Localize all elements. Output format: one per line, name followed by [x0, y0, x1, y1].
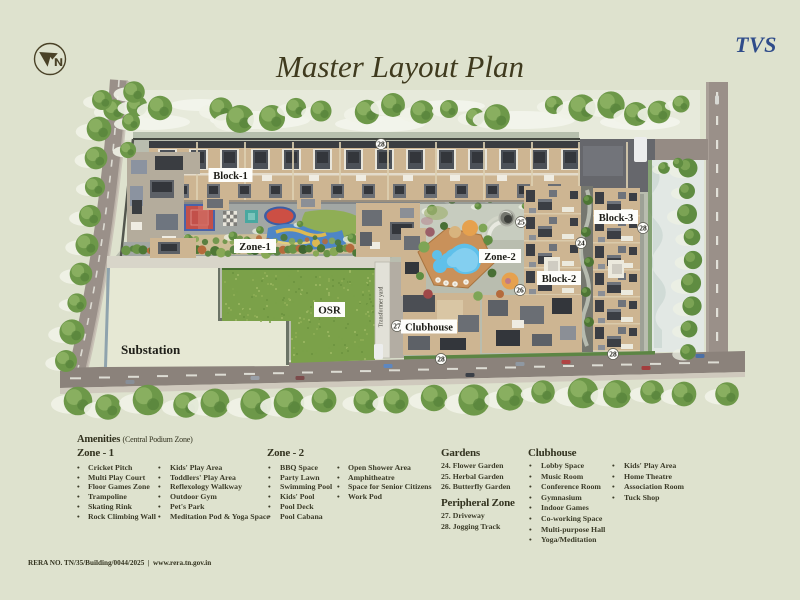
- svg-text:Substation: Substation: [121, 342, 181, 357]
- svg-text:Block-1: Block-1: [213, 171, 247, 182]
- svg-text:28: 28: [609, 350, 617, 359]
- svg-text:26: 26: [516, 286, 524, 295]
- svg-text:Transformer yard: Transformer yard: [378, 287, 385, 328]
- svg-text:24: 24: [577, 239, 585, 248]
- svg-text:Block-2: Block-2: [542, 274, 576, 285]
- svg-text:28: 28: [437, 355, 445, 364]
- svg-text:Clubhouse: Clubhouse: [405, 322, 453, 333]
- svg-text:25: 25: [517, 218, 525, 227]
- svg-text:Block-3: Block-3: [599, 213, 633, 224]
- svg-text:Zone-2: Zone-2: [484, 252, 516, 263]
- svg-text:27: 27: [393, 322, 401, 331]
- svg-text:28: 28: [639, 224, 647, 233]
- svg-text:Zone-1: Zone-1: [239, 242, 271, 253]
- svg-text:OSR: OSR: [318, 305, 342, 317]
- svg-text:28: 28: [377, 140, 385, 149]
